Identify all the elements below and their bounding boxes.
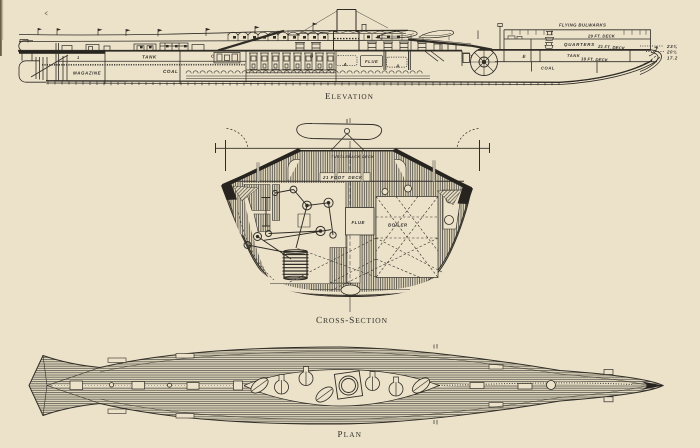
svg-text:FLUE: FLUE [352,220,366,225]
svg-text:TANK: TANK [142,55,157,60]
svg-text:17.2: 17.2 [667,56,678,61]
svg-text:D: D [469,54,473,59]
svg-text:QUARTERS: QUARTERS [564,42,595,47]
svg-text:TANK: TANK [567,53,581,58]
svg-text:21 FOOT DECK: 21 FOOT DECK [322,175,363,180]
svg-text:COAL: COAL [541,65,555,70]
svg-text:A: A [343,62,348,67]
svg-text:ELEVATION: ELEVATION [325,91,374,101]
svg-text:CROSS-SECTION: CROSS-SECTION [316,316,388,326]
svg-text:PLAN: PLAN [338,429,363,439]
svg-text:A: A [395,64,400,69]
svg-text:C: C [211,54,215,59]
svg-text:23¾: 23¾ [666,44,678,49]
svg-text:FLUE: FLUE [365,59,378,64]
svg-text:MAGAZINE: MAGAZINE [73,70,102,75]
svg-text:20¼: 20¼ [666,50,677,55]
svg-text:29 FT. DECK: 29 FT. DECK [587,34,616,39]
svg-text:TURTLEBACK DECK: TURTLEBACK DECK [331,155,374,159]
svg-text:1: 1 [77,55,80,60]
svg-text:B: B [310,54,314,59]
svg-text:E: E [523,54,527,59]
svg-text:FLYING BULWARKS: FLYING BULWARKS [559,23,606,28]
svg-text:COAL: COAL [163,69,178,74]
svg-text:BOILER: BOILER [388,223,408,228]
